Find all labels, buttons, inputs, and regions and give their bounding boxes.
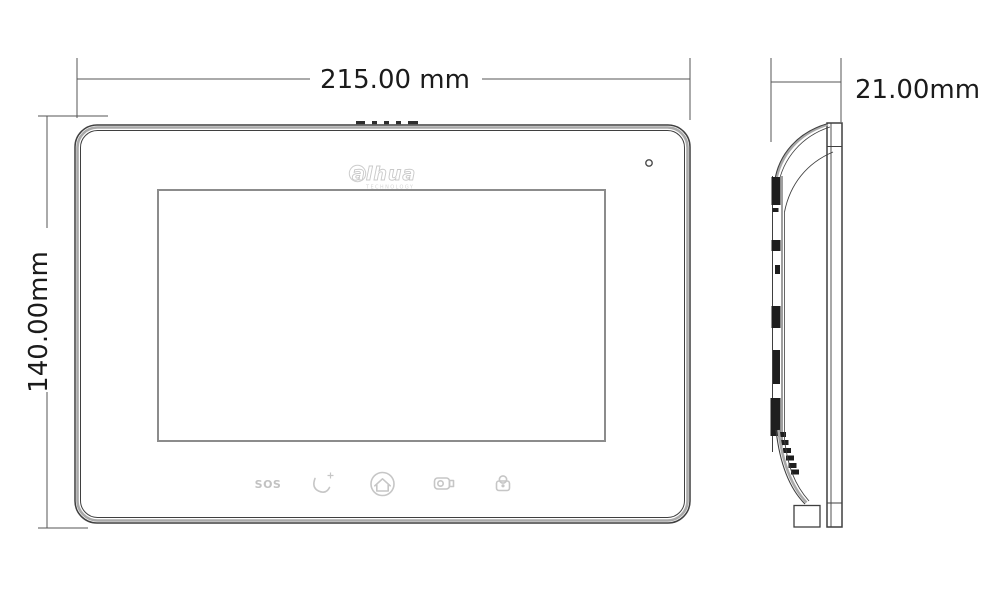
call-icon[interactable] — [314, 473, 334, 493]
front-view: alhua TECHNOLOGY SOS — [75, 121, 690, 523]
brand-logo: alhua TECHNOLOGY — [349, 163, 416, 191]
side-front-bar — [827, 123, 842, 527]
side-front-bar-dividers — [827, 147, 842, 504]
dimension-drawing-page: alhua TECHNOLOGY SOS — [0, 0, 1000, 600]
width-dimension-label: 215.00 mm — [320, 65, 470, 95]
mic-hole — [646, 160, 652, 166]
unlock-icon[interactable] — [497, 476, 510, 491]
side-wall-foot — [794, 506, 820, 528]
logo-text: alhua — [352, 163, 416, 185]
depth-dimension-label: 21.00mm — [855, 75, 980, 105]
drawing-canvas: alhua TECHNOLOGY SOS — [0, 0, 1000, 600]
side-back-shell-top — [775, 124, 834, 213]
side-mounting-rail — [771, 176, 783, 452]
sos-button[interactable]: SOS — [255, 478, 282, 491]
depth-dimension — [771, 58, 841, 142]
screen-panel — [158, 190, 605, 441]
touch-button-row: SOS — [255, 473, 510, 496]
top-vent-slots — [356, 121, 418, 124]
height-dimension-label: 140.00mm — [24, 251, 54, 393]
side-view — [771, 123, 843, 527]
monitor-icon[interactable] — [435, 478, 454, 489]
home-icon[interactable] — [371, 473, 394, 496]
